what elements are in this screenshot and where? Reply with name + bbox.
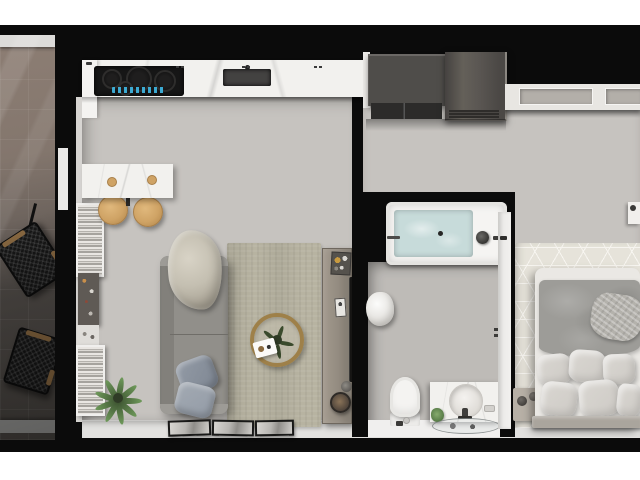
drawer-handle	[314, 66, 322, 68]
cabinet-lower-drawers	[371, 103, 442, 119]
balcony-window-sill	[0, 35, 55, 47]
oven-handle	[86, 62, 92, 65]
vase	[341, 381, 352, 392]
kitchen-sink	[223, 69, 271, 86]
fridge-vent	[449, 110, 499, 118]
wall-shelf	[628, 202, 640, 224]
drain-icon	[438, 231, 443, 236]
corner-plant	[94, 374, 142, 422]
kitchen-counter	[82, 60, 363, 97]
shelf-middle	[77, 325, 99, 345]
flush-button	[403, 417, 410, 424]
unit-floor-shadow	[366, 119, 506, 131]
plant-pot	[113, 393, 123, 403]
nightstand-lamp	[517, 396, 527, 406]
balcony	[0, 35, 55, 440]
wardrobe-sliding-door	[519, 88, 593, 105]
towel-bundle	[366, 292, 394, 326]
bath-water	[394, 210, 473, 257]
vase	[330, 392, 351, 413]
bathtub	[386, 202, 507, 265]
bed-pillow	[539, 380, 578, 418]
balcony-bottom-sill	[0, 420, 55, 433]
balcony-door-frame	[58, 148, 68, 210]
round-coffee-table	[250, 313, 304, 367]
bathroom	[352, 192, 515, 437]
bar-table	[82, 164, 173, 198]
console-tray	[330, 251, 351, 275]
double-bed	[535, 268, 640, 428]
cooktop-led-display	[112, 87, 166, 93]
shelf-item	[630, 205, 636, 211]
leaning-picture-frame	[168, 419, 212, 436]
bedroom	[505, 84, 640, 437]
glass-shelf	[432, 418, 500, 434]
drawer-handle	[176, 66, 184, 68]
wardrobe-sliding-door	[605, 88, 640, 105]
headboard	[532, 416, 640, 428]
tray-item	[266, 345, 271, 350]
bed-pillow	[615, 383, 640, 417]
wardrobe-shadow	[505, 110, 640, 118]
remote-control	[334, 298, 346, 318]
sofa-seat-seam	[170, 334, 228, 335]
chair-armrest	[50, 250, 55, 266]
floor-drain	[396, 421, 403, 426]
dark-cabinet	[368, 54, 446, 106]
drawer-handle	[242, 66, 250, 68]
leaning-picture-frame	[255, 420, 294, 437]
towel-bar	[387, 236, 400, 239]
bar-stool	[98, 195, 128, 225]
bed-pillow	[568, 349, 606, 383]
bar-stool	[133, 197, 163, 227]
soap-dish	[484, 405, 495, 412]
tray-item	[257, 345, 264, 352]
decor-shelf	[78, 273, 99, 325]
living-room	[76, 97, 352, 422]
tub-faucet	[476, 231, 489, 244]
floorplan-render	[0, 0, 640, 480]
toilet	[390, 377, 420, 417]
leaning-picture-frame	[212, 420, 254, 437]
bed-pillow	[578, 378, 621, 417]
cup	[107, 177, 117, 187]
cup	[147, 175, 157, 185]
refrigerator	[445, 52, 507, 121]
built-in-wardrobe	[505, 84, 640, 110]
induction-cooktop	[94, 66, 184, 96]
